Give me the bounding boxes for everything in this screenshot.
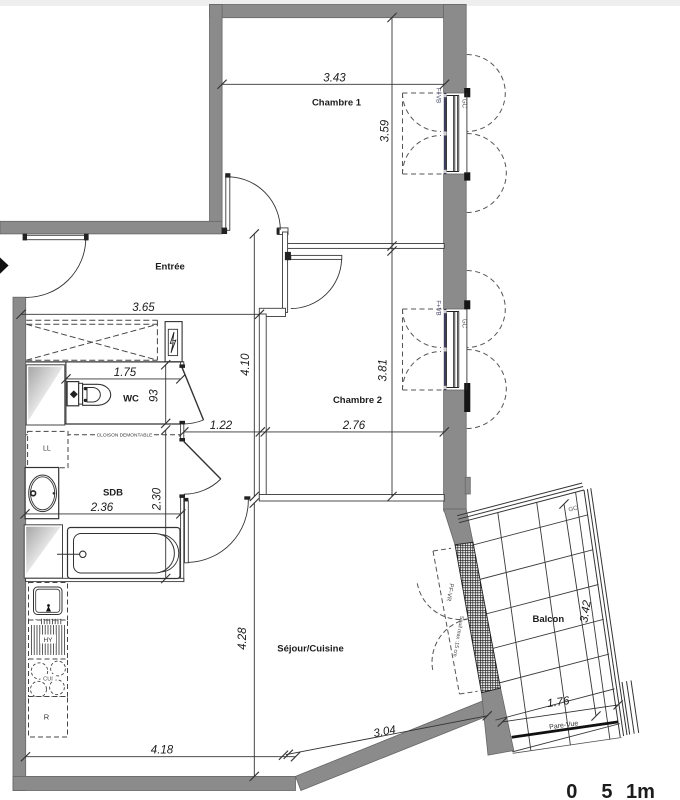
svg-text:Entrée: Entrée	[155, 261, 185, 272]
svg-text:R: R	[44, 713, 50, 722]
svg-text:F+VB: F+VB	[434, 300, 440, 315]
svg-text:93: 93	[148, 389, 160, 402]
svg-text:Balcon: Balcon	[532, 614, 564, 625]
svg-text:WC: WC	[123, 394, 139, 405]
svg-text:Chambre 2: Chambre 2	[333, 395, 382, 406]
svg-text:GC: GC	[461, 319, 468, 329]
svg-text:1m: 1m	[626, 781, 655, 800]
svg-text:2.36: 2.36	[90, 502, 114, 514]
svg-text:HY: HY	[43, 637, 53, 644]
svg-text:2.76: 2.76	[342, 420, 366, 432]
svg-text:Chambre 1: Chambre 1	[312, 98, 362, 109]
svg-text:SDB: SDB	[103, 488, 123, 499]
svg-text:3.43: 3.43	[323, 72, 346, 84]
svg-text:CLOISON DEMONTABLE: CLOISON DEMONTABLE	[97, 433, 153, 439]
svg-text:F+VB: F+VB	[434, 88, 440, 103]
svg-text:CUI: CUI	[43, 676, 53, 682]
svg-text:1.22: 1.22	[210, 420, 233, 432]
svg-text:4.10: 4.10	[240, 353, 252, 376]
svg-text:2.30: 2.30	[152, 487, 164, 511]
svg-text:GC: GC	[461, 99, 468, 109]
svg-text:5: 5	[601, 781, 612, 800]
svg-text:3.65: 3.65	[132, 302, 155, 314]
svg-text:4.18: 4.18	[151, 745, 174, 757]
svg-text:3.59: 3.59	[379, 119, 391, 142]
svg-text:Séjour/Cuisine: Séjour/Cuisine	[277, 644, 344, 655]
svg-text:LL: LL	[43, 446, 51, 453]
svg-text:3.81: 3.81	[378, 359, 390, 381]
svg-text:1.75: 1.75	[114, 367, 137, 379]
svg-text:0: 0	[566, 781, 577, 800]
svg-text:4.28: 4.28	[237, 627, 249, 650]
